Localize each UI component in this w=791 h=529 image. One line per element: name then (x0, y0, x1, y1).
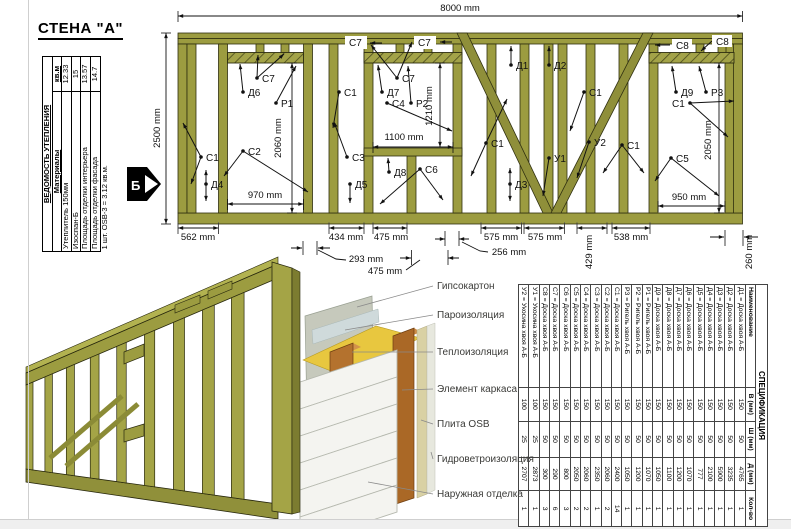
dimension: 2500 mm (152, 33, 171, 224)
element-label: С1 (672, 99, 685, 110)
element-label: С5 (676, 154, 689, 165)
insulation-note: 1 шт. OSB-3 = 3.12 кв.м. (100, 57, 109, 252)
spec-row: С6 = Доска хвоя А-Б150508003 (560, 285, 570, 527)
element-annotation: С3 (334, 122, 365, 164)
dimension-label: 1100 mm (385, 132, 424, 143)
frame-member (256, 44, 264, 53)
element-annotation: Р1 (274, 66, 296, 110)
element-annotation: Д8 (387, 158, 407, 179)
dimension-label: 475 mm (374, 232, 408, 243)
spec-row: Р2 = Ригель хвоя А-Б1505012001 (632, 285, 642, 527)
dimension-label: 260 mm (744, 235, 755, 269)
element-annotation: С7 (371, 42, 415, 85)
dimension: 950 mm (658, 192, 725, 212)
element-label: Д4 (211, 180, 224, 191)
layer-label: Пароизоляция (437, 310, 504, 321)
frame-member (187, 44, 196, 213)
element-label: С8 (716, 37, 729, 48)
element-label: С1 (206, 153, 219, 164)
dimension-label: 2050 mm (703, 120, 714, 160)
dimension-label: 429 mm (584, 235, 595, 269)
dimension-label: 2060 mm (273, 118, 284, 158)
spec-row: С5 = Доска хвоя А-Б1505020502 (570, 285, 580, 527)
header-beam (228, 53, 304, 64)
element-annotation: Д9 (671, 66, 694, 99)
dimension-label: 970 mm (248, 190, 282, 201)
spec-row: Д9 = Доска хвоя А-Б1505010501 (653, 285, 663, 527)
spec-row: Д6 = Доска хвоя А-Б1505010701 (683, 285, 693, 527)
dimension: 475 mm (373, 222, 408, 243)
element-annotation: С2 (224, 147, 308, 192)
spec-table-wrap: СПЕЦИФИКАЦИЯНаименованиеВ (мм)Ш (мм)Д (м… (518, 284, 768, 527)
dimension: 538 mm (612, 222, 650, 243)
layer-label: Наружная отделка (437, 489, 523, 500)
dimension-label: 293 mm (349, 254, 383, 265)
element-label: Д8 (394, 168, 407, 179)
element-label: Д5 (355, 180, 368, 191)
spec-row: Д1 = Доска хвоя А-Б1505047651 (735, 285, 745, 527)
element-label: С4 (392, 99, 405, 110)
page-edge-left (28, 0, 29, 519)
dimension: 8000 mm (178, 3, 743, 22)
spec-row: С2 = Доска хвоя А-Б1505020602 (601, 285, 611, 527)
section-marker: Б (127, 167, 161, 201)
spec-table: СПЕЦИФИКАЦИЯНаименованиеВ (мм)Ш (мм)Д (м… (518, 284, 768, 527)
element-label: Р1 (281, 99, 294, 110)
dimension: 562 mm (178, 222, 219, 243)
dimension-label: 950 mm (672, 192, 706, 203)
header-beam (649, 53, 734, 64)
page-title: СТЕНА "А" (38, 20, 123, 40)
dimension-label: 538 mm (614, 232, 648, 243)
element-label: С7 (262, 74, 275, 85)
wall-layers-illustration (300, 296, 435, 529)
dimension-label: 575 mm (484, 232, 518, 243)
dimension: 293 mm (291, 241, 383, 265)
element-label: С6 (425, 165, 438, 176)
element-label: С8 (676, 41, 689, 52)
element-label: Р2 (416, 99, 429, 110)
spec-row: С8 = Доска хвоя А-Б150503003 (539, 285, 549, 527)
element-label: С1 (344, 88, 357, 99)
spec-row: У1 = Укосина хвоя А-Б1002528731 (529, 285, 539, 527)
element-label: С1 (627, 141, 640, 152)
dimension: 260 mm (710, 230, 758, 269)
layer-label: Гидроветроизоляция (437, 454, 534, 465)
dimension: 575 mm (524, 222, 565, 243)
spec-row: Р1 = Ригель хвоя А-Б1505010701 (642, 285, 652, 527)
element-label: У2 (594, 138, 606, 149)
spec-row: С3 = Доска хвоя А-Б1505023501 (591, 285, 601, 527)
layer-label: Плита OSB (437, 419, 490, 430)
element-annotation: Р3 (699, 66, 724, 99)
element-label: Д3 (515, 180, 528, 191)
dimension: 575 mm (481, 222, 522, 243)
insulation-table-wrap: ВЕДОМОСТЬ УТЕПЛЕНИЯМатериалыкв.мУтеплите… (42, 56, 109, 252)
element-label: Д9 (681, 88, 694, 99)
siding-planks (300, 350, 397, 529)
spec-row: Д4 = Доска хвоя А-Б1505021001 (704, 285, 714, 527)
spec-row: Д5 = Доска хвоя А-Б150507771 (694, 285, 704, 527)
element-annotation: Д7 (377, 65, 400, 99)
dimension: 2050 mm (703, 63, 724, 213)
element-label: Д6 (248, 88, 261, 99)
layer-label: Элемент каркаса (437, 384, 517, 395)
element-label: С1 (589, 88, 602, 99)
element-label: С7 (402, 74, 415, 85)
dimension-label: 434 mm (329, 232, 363, 243)
dimension-label: 8000 mm (440, 3, 480, 14)
dimension: 429 mm (577, 222, 607, 269)
spec-header-row: НаименованиеВ (мм)Ш (мм)Д (мм)Кол-во (745, 285, 755, 527)
dimension-label: 575 mm (528, 232, 562, 243)
element-label: С2 (248, 147, 261, 158)
element-label: Д7 (387, 88, 400, 99)
dimension: 434 mm (329, 222, 364, 243)
frame-member (649, 44, 658, 213)
element-label: Д1 (516, 61, 529, 72)
frame-member (487, 44, 496, 213)
frame-member (407, 156, 416, 213)
dimension-label: 475 mm (368, 266, 402, 277)
frame-member (281, 44, 289, 53)
insulation-row: Утеплитель 150мм12.33 (62, 57, 72, 252)
insulation-row: Площадь отделки фасада14.7 (90, 57, 100, 252)
dimension-label: 2500 mm (152, 108, 163, 148)
insulation-table-header: ВЕДОМОСТЬ УТЕПЛЕНИЯ (43, 57, 53, 252)
frame-member (453, 44, 462, 213)
layer-label: Теплоизоляция (437, 347, 508, 358)
element-label: Д2 (554, 61, 567, 72)
element-label: С7 (418, 38, 431, 49)
window-sill (364, 148, 462, 156)
spec-row: С1 = Доска хвоя А-Б15050240014 (611, 285, 621, 527)
spec-row: С7 = Доска хвоя А-Б150502906 (550, 285, 560, 527)
frame-member (725, 44, 734, 213)
element-label: С7 (349, 38, 362, 49)
wind-barrier-layer (427, 323, 435, 494)
frame-member (734, 44, 743, 213)
spec-row: Р3 = Ригель хвоя А-Б1505010501 (622, 285, 632, 527)
spec-row: Д8 = Доска хвоя А-Б1505011001 (663, 285, 673, 527)
frame-member (304, 44, 313, 213)
frame-member (178, 213, 743, 224)
spec-title-row: СПЕЦИФИКАЦИЯ (756, 285, 768, 527)
dimension-label: 256 mm (492, 247, 526, 258)
spec-row: Д7 = Доска хвоя А-Б1505012001 (673, 285, 683, 527)
frame-member (396, 44, 404, 53)
dimension-label: 562 mm (181, 232, 215, 243)
spec-row: Д3 = Доска хвоя А-Б1505059001 (714, 285, 724, 527)
frame-member (544, 44, 553, 213)
insulation-table: ВЕДОМОСТЬ УТЕПЛЕНИЯМатериалыкв.мУтеплите… (42, 56, 109, 252)
frame-member (586, 44, 595, 213)
layer-label: Гипсокартон (437, 281, 495, 292)
element-label: С1 (491, 139, 504, 150)
element-label: С3 (352, 153, 365, 164)
drawing-sheet: Б 8000 mm2500 mm2060 mm970 mm1100 mm1210… (0, 0, 791, 529)
spec-row: Д2 = Доска хвоя А-Б1505032351 (725, 285, 735, 527)
element-label: У1 (554, 154, 566, 165)
section-marker-label: Б (131, 178, 140, 193)
diagonal-brace (457, 33, 553, 213)
frame-3d-render (26, 257, 300, 519)
element-label: Р3 (711, 88, 724, 99)
spec-row: С4 = Доска хвоя А-Б1505020602 (580, 285, 590, 527)
